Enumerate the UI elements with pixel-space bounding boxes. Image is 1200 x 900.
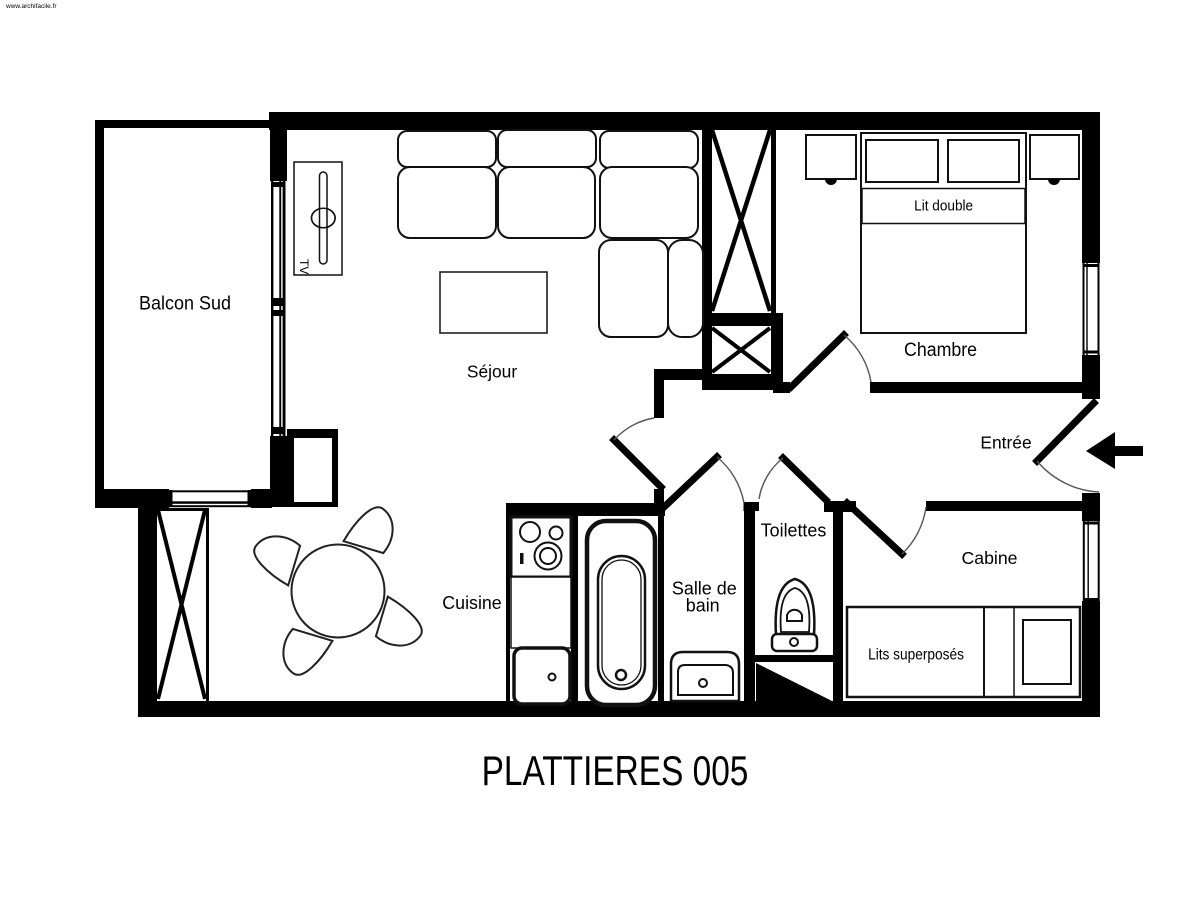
svg-text:Cabine: Cabine	[961, 548, 1017, 568]
svg-text:Lits superposés: Lits superposés	[868, 647, 964, 664]
svg-text:www.archifacile.fr: www.archifacile.fr	[5, 3, 57, 10]
svg-text:TV: TV	[297, 259, 311, 274]
svg-text:Toilettes: Toilettes	[761, 520, 826, 540]
svg-text:Balcon Sud: Balcon Sud	[139, 292, 231, 314]
svg-text:PLATTIERES 005: PLATTIERES 005	[482, 748, 749, 794]
svg-text:Lit double: Lit double	[914, 197, 973, 214]
svg-text:Chambre: Chambre	[904, 338, 977, 360]
svg-text:Entrée: Entrée	[980, 432, 1031, 452]
svg-text:Séjour: Séjour	[467, 362, 517, 382]
svg-text:bain: bain	[686, 595, 720, 615]
svg-text:Cuisine: Cuisine	[442, 592, 501, 614]
